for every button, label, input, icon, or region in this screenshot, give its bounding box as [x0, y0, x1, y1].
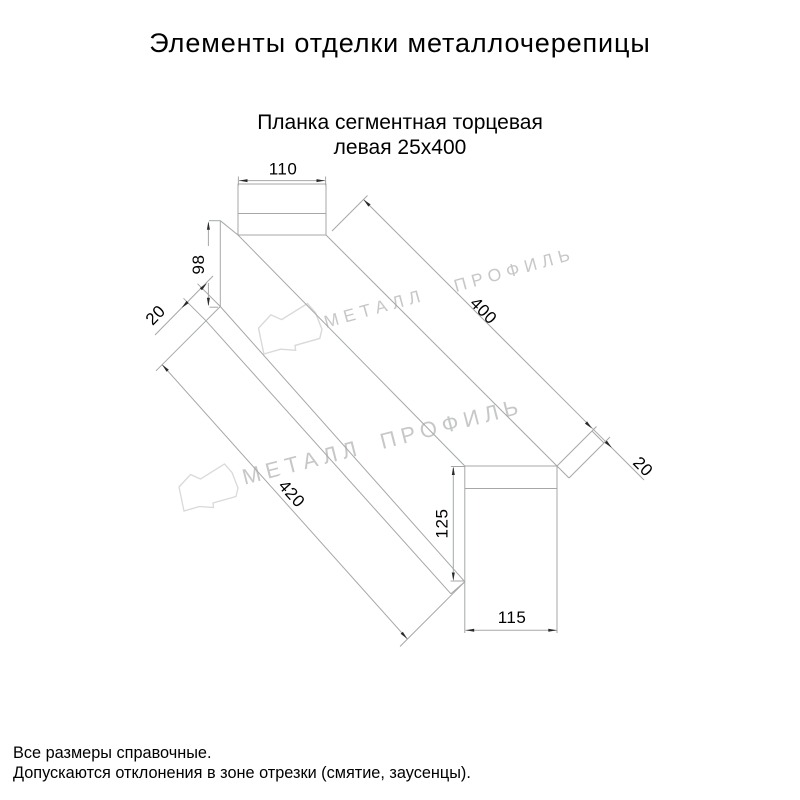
svg-text:400: 400	[466, 294, 501, 329]
svg-text:110: 110	[269, 160, 298, 179]
svg-text:115: 115	[498, 608, 527, 627]
svg-text:МЕТАЛЛ ПРОФИЛЬ: МЕТАЛЛ ПРОФИЛЬ	[322, 243, 577, 332]
svg-text:98: 98	[189, 255, 208, 275]
svg-text:125: 125	[433, 509, 452, 539]
svg-text:20: 20	[629, 453, 657, 481]
